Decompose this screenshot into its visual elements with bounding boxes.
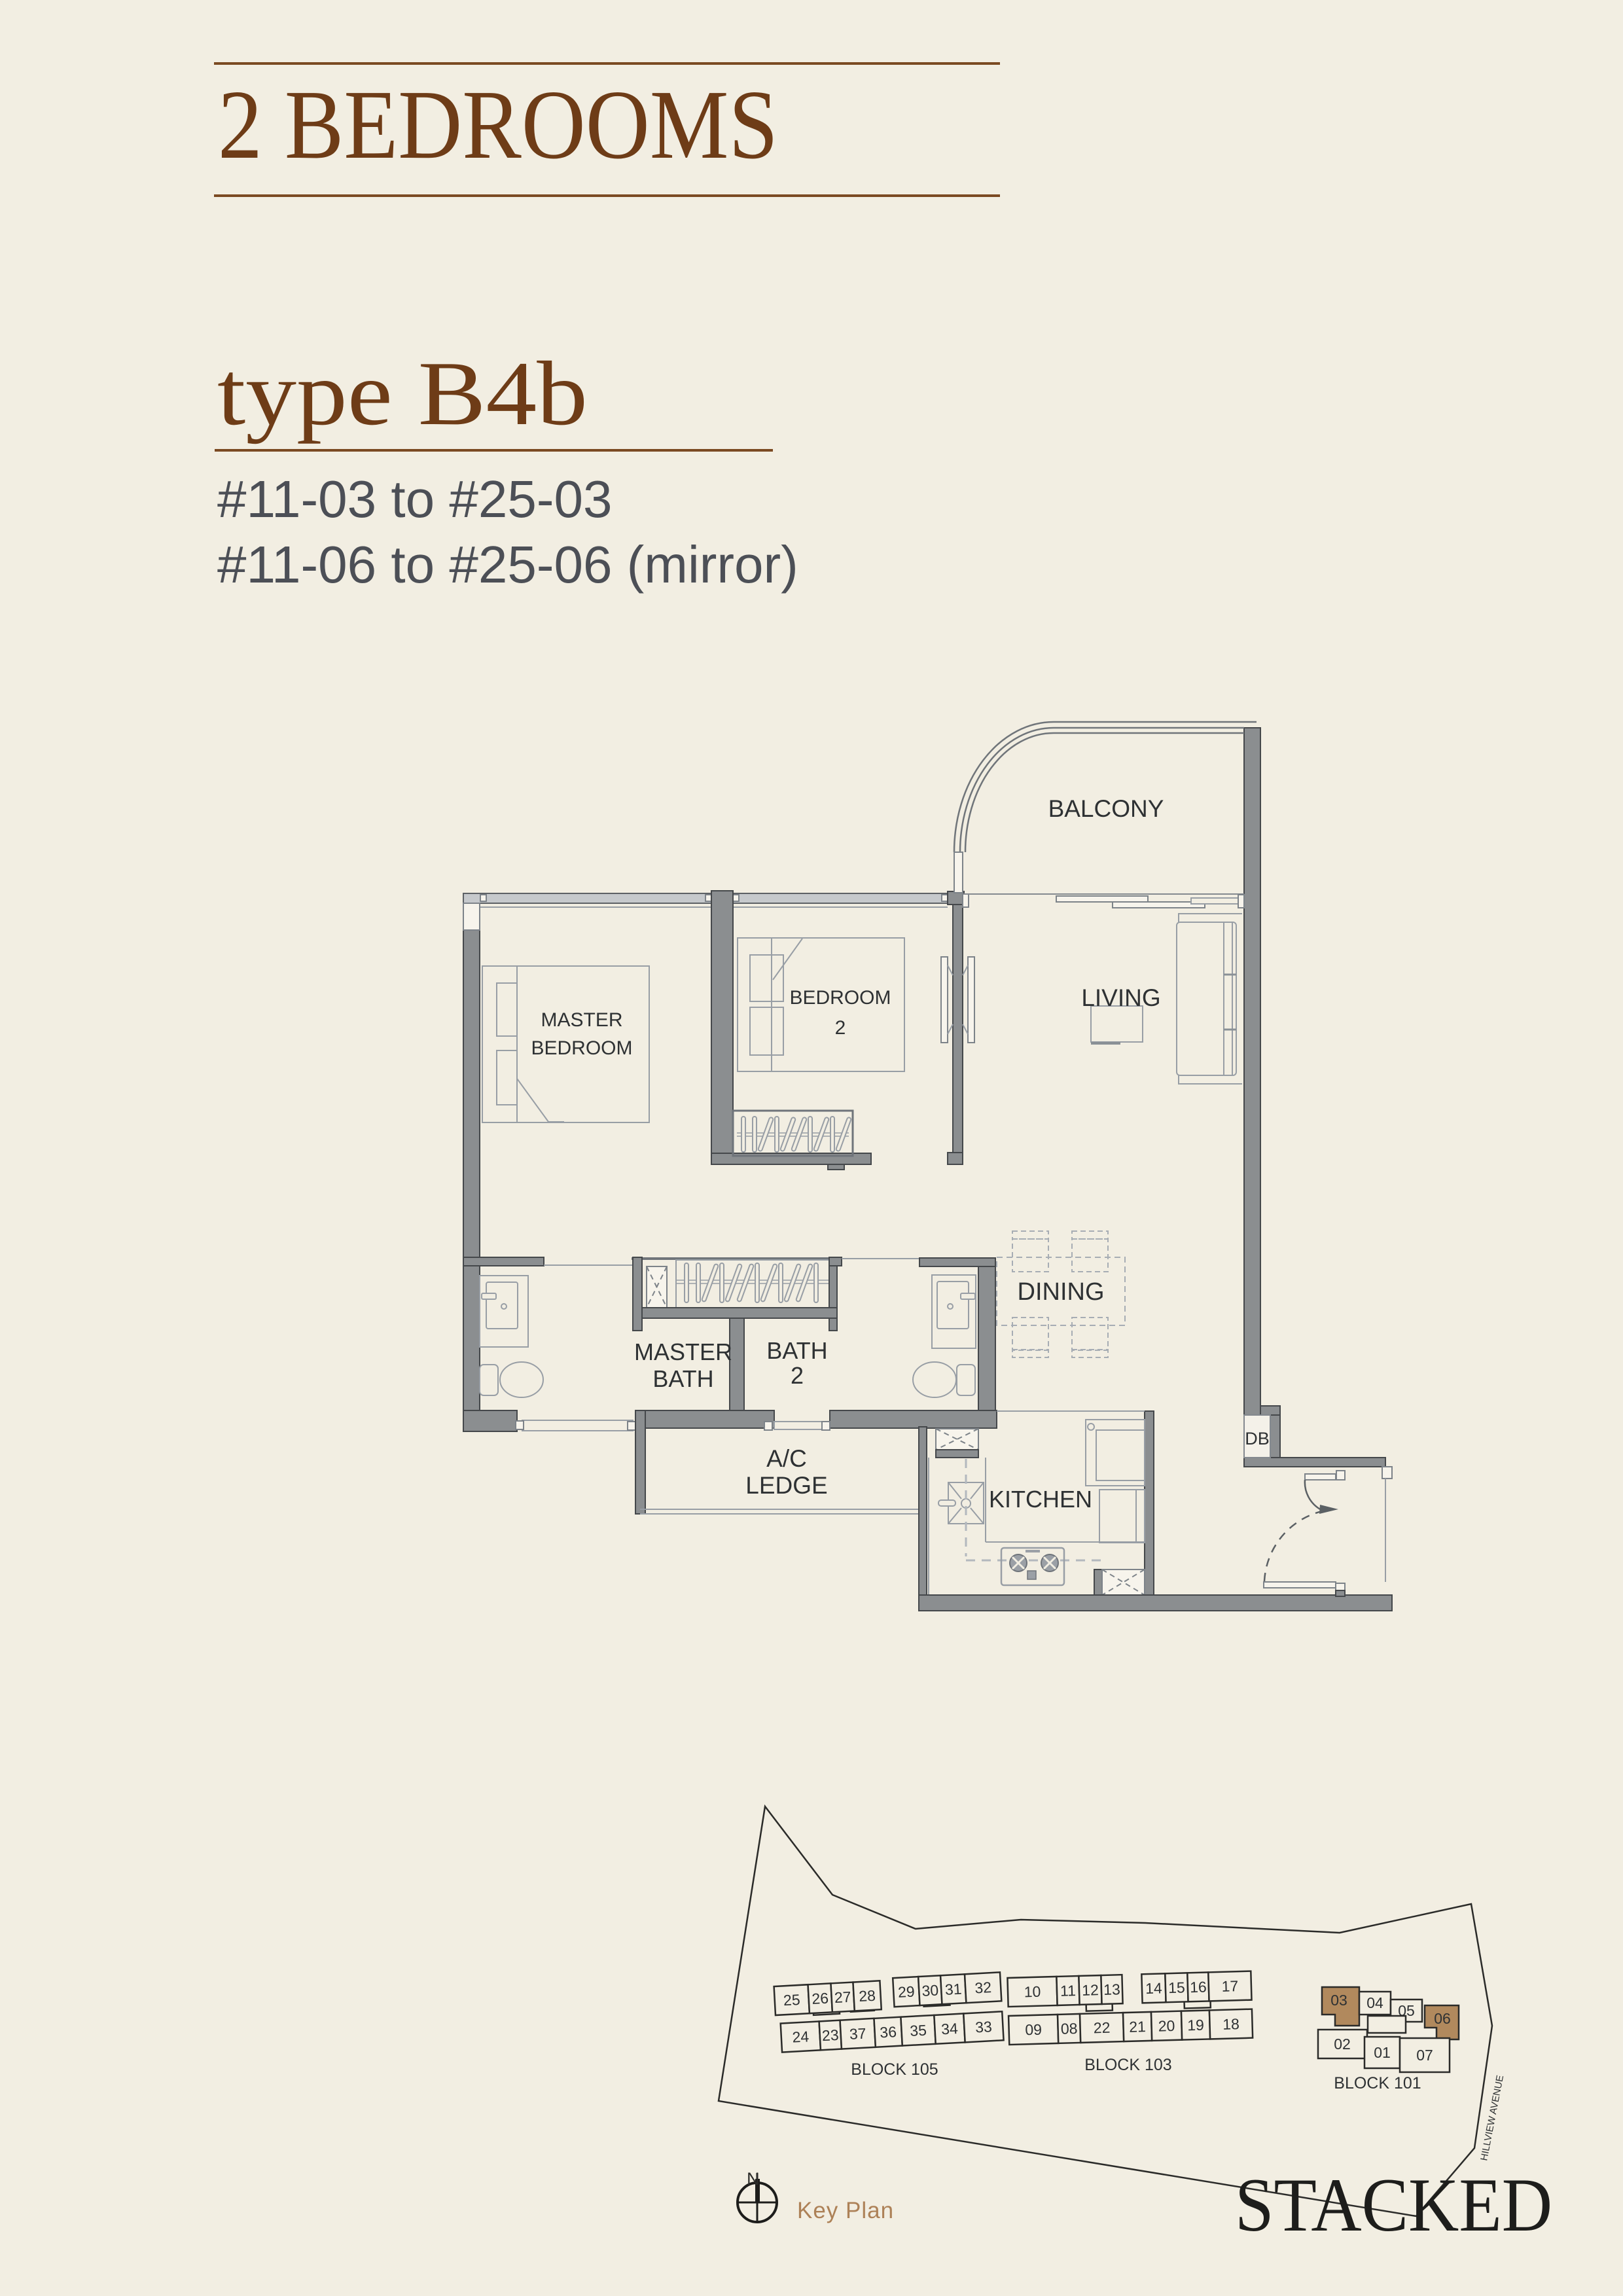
svg-text:20: 20 xyxy=(1158,2017,1175,2035)
svg-text:Key Plan: Key Plan xyxy=(797,2198,894,2223)
svg-text:01: 01 xyxy=(1374,2044,1391,2061)
svg-text:15: 15 xyxy=(1168,1979,1185,1996)
svg-text:LEDGE: LEDGE xyxy=(745,1472,827,1499)
svg-text:BEDROOM: BEDROOM xyxy=(531,1037,632,1059)
svg-text:23: 23 xyxy=(821,2026,839,2044)
svg-text:36: 36 xyxy=(880,2023,897,2041)
svg-text:37: 37 xyxy=(849,2025,866,2043)
svg-text:MASTER: MASTER xyxy=(541,1009,622,1031)
svg-text:22: 22 xyxy=(1093,2019,1110,2037)
svg-text:2 BEDROOMS: 2 BEDROOMS xyxy=(218,69,778,179)
svg-text:2: 2 xyxy=(835,1017,846,1039)
svg-text:27: 27 xyxy=(834,1988,851,2006)
svg-text:19: 19 xyxy=(1187,2017,1204,2034)
svg-text:08: 08 xyxy=(1060,2020,1077,2037)
svg-text:BEDROOM: BEDROOM xyxy=(789,987,891,1009)
svg-text:29: 29 xyxy=(897,1982,915,2000)
svg-text:STACKED: STACKED xyxy=(1235,2163,1552,2248)
svg-text:KITCHEN: KITCHEN xyxy=(989,1486,1092,1513)
svg-text:#11-06 to #25-06 (mirror): #11-06 to #25-06 (mirror) xyxy=(217,535,798,594)
svg-text:25: 25 xyxy=(783,1991,800,2009)
svg-text:DB: DB xyxy=(1245,1429,1270,1448)
svg-text:13: 13 xyxy=(1103,1981,1120,1998)
svg-text:03: 03 xyxy=(1330,1992,1347,2009)
svg-text:#11-03 to #25-03: #11-03 to #25-03 xyxy=(217,470,612,528)
svg-text:BALCONY: BALCONY xyxy=(1048,795,1164,822)
svg-text:32: 32 xyxy=(974,1979,992,1996)
svg-text:09: 09 xyxy=(1025,2021,1042,2039)
svg-text:LIVING: LIVING xyxy=(1081,984,1160,1011)
svg-text:07: 07 xyxy=(1416,2047,1433,2064)
svg-text:BATH: BATH xyxy=(652,1365,713,1392)
svg-text:06: 06 xyxy=(1434,2010,1451,2027)
svg-text:14: 14 xyxy=(1145,1979,1163,1997)
svg-text:34: 34 xyxy=(941,2020,959,2037)
svg-text:26: 26 xyxy=(811,1990,829,2007)
svg-text:BLOCK 101: BLOCK 101 xyxy=(1334,2074,1421,2092)
svg-text:12: 12 xyxy=(1082,1981,1099,1999)
svg-text:28: 28 xyxy=(859,1987,876,2005)
svg-text:A/C: A/C xyxy=(766,1445,807,1472)
svg-text:MASTER: MASTER xyxy=(634,1338,732,1365)
svg-text:30: 30 xyxy=(921,1981,939,1999)
svg-text:BLOCK 103: BLOCK 103 xyxy=(1084,2056,1171,2074)
svg-text:16: 16 xyxy=(1190,1979,1207,1996)
svg-text:2: 2 xyxy=(791,1362,804,1389)
svg-text:04: 04 xyxy=(1366,1994,1383,2011)
svg-text:24: 24 xyxy=(792,2028,810,2045)
svg-text:N: N xyxy=(747,2169,760,2189)
svg-text:10: 10 xyxy=(1024,1983,1041,2001)
svg-text:31: 31 xyxy=(944,1981,962,1998)
svg-text:BLOCK 105: BLOCK 105 xyxy=(851,2060,938,2079)
svg-text:21: 21 xyxy=(1129,2018,1146,2036)
svg-text:33: 33 xyxy=(974,2018,992,2036)
svg-text:02: 02 xyxy=(1334,2036,1351,2053)
svg-text:11: 11 xyxy=(1060,1982,1077,2000)
svg-text:17: 17 xyxy=(1221,1977,1238,1995)
svg-text:type B4b: type B4b xyxy=(217,343,588,444)
svg-text:BATH: BATH xyxy=(766,1337,827,1364)
svg-text:35: 35 xyxy=(910,2022,927,2039)
svg-text:18: 18 xyxy=(1222,2015,1240,2033)
svg-text:DINING: DINING xyxy=(1018,1278,1105,1306)
